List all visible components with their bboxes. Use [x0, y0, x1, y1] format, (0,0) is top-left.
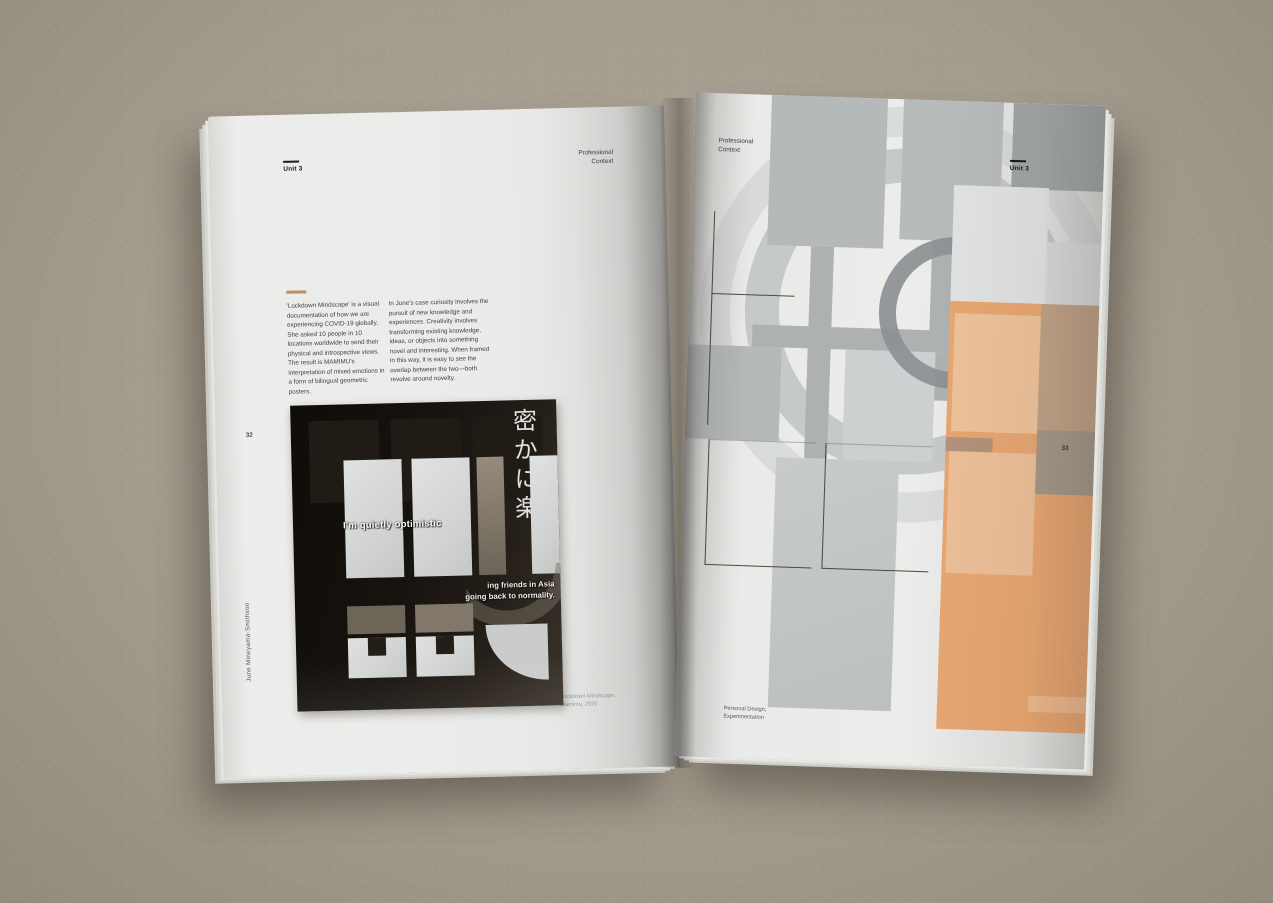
art-square-pale	[950, 185, 1049, 304]
photo-background: Unit 3 Professional Context 'Lockdown Mi…	[0, 0, 1273, 903]
art-light-orange-band	[1028, 696, 1086, 714]
art-outline-square	[821, 443, 932, 572]
left-page: Unit 3 Professional Context 'Lockdown Mi…	[208, 106, 680, 778]
right-page: Professional Context Unit 3 33 Personal …	[674, 92, 1106, 769]
geometric-artwork	[674, 92, 1106, 769]
art-outline-square	[711, 211, 797, 297]
right-header-unit: Unit 3	[1010, 160, 1030, 173]
credit-vertical: June Mineyama-Smithson	[243, 564, 253, 682]
art-tan-strip	[1037, 304, 1099, 432]
poster-sheen	[296, 653, 563, 711]
page-number-right: 33	[1061, 445, 1068, 452]
section-line2: Context	[578, 157, 613, 166]
art-square	[685, 344, 782, 441]
unit-label: Unit 3	[1010, 165, 1029, 173]
right-page-caption: Personal Design, Experimentation	[723, 706, 766, 723]
poster-light-strip	[529, 455, 560, 574]
art-square-dark	[1011, 103, 1106, 192]
caption-line2: Experimentation	[723, 713, 766, 722]
art-tan-square	[1035, 430, 1095, 496]
lockdown-mindscape-poster: 密かに楽 I'm quietly optimistic ing friends …	[290, 399, 563, 711]
unit-label: Unit 3	[283, 165, 302, 172]
poster-overlay-line2: going back to normality.	[465, 589, 555, 602]
poster-credit-line1: Lockdown Mindscape,	[560, 693, 616, 702]
unit-rule	[283, 160, 299, 162]
art-tan-band	[945, 437, 992, 453]
page-number-left: 32	[246, 432, 253, 439]
art-peach-square	[951, 313, 1041, 434]
left-header-unit: Unit 3	[283, 160, 303, 172]
art-square-pale	[1045, 242, 1101, 306]
section-line1: Professional	[578, 149, 613, 158]
section-line2: Context	[718, 146, 753, 156]
art-outline-square	[704, 439, 815, 568]
body-paragraph: In June's case curiosity involves the pu…	[389, 297, 492, 385]
poster-taupe-cell	[415, 603, 474, 632]
poster-taupe-cell	[347, 605, 406, 634]
poster-overlay-lines: ing friends in Asia going back to normal…	[465, 578, 555, 602]
right-header-section: Professional Context	[718, 137, 753, 155]
poster-credit-caption: Lockdown Mindscape, Mamimu, 2020	[560, 693, 616, 710]
left-header-section: Professional Context	[578, 149, 613, 167]
intro-paragraph: 'Lockdown Mindscape' is a visual documen…	[287, 299, 390, 396]
art-peach-square	[945, 451, 1036, 576]
poster-tan-strip	[476, 457, 506, 576]
poster-credit-line2: Mamimu, 2020	[560, 700, 616, 709]
unit-rule	[1010, 160, 1026, 163]
accent-dash	[286, 290, 306, 293]
poster-dark-tab	[368, 637, 386, 655]
poster-dark-tab	[436, 636, 454, 654]
